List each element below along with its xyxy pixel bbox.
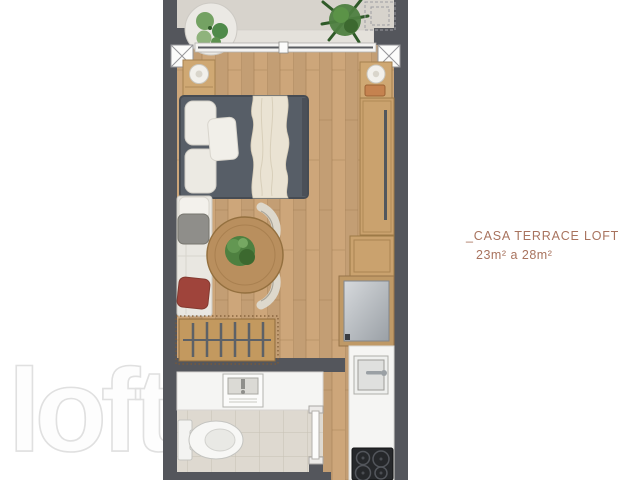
loft-watermark: loft bbox=[8, 352, 167, 470]
sliding-door bbox=[195, 42, 376, 53]
unit-label: _CASA TERRACE LOFT 23m² a 28m² bbox=[466, 229, 619, 262]
unit-title: _CASA TERRACE LOFT bbox=[466, 229, 619, 243]
cooktop bbox=[352, 448, 393, 480]
refrigerator bbox=[339, 276, 394, 346]
dining-table bbox=[207, 217, 283, 293]
slatted-bench bbox=[176, 316, 278, 364]
toilet bbox=[178, 420, 243, 460]
floorplan-canvas: { "page": { "width": 640, "height": 480,… bbox=[0, 0, 640, 480]
kitchen-cabinet bbox=[350, 236, 394, 276]
sofa-pillow-gray bbox=[178, 214, 209, 244]
table-plant bbox=[225, 236, 255, 266]
bed-blanket bbox=[251, 96, 289, 198]
wardrobe bbox=[360, 98, 394, 235]
floor-plan bbox=[163, 0, 408, 480]
bed bbox=[180, 96, 308, 198]
nightstand-right bbox=[360, 62, 392, 98]
bathroom-sink bbox=[223, 374, 263, 407]
kitchen-sink bbox=[354, 356, 388, 394]
unit-area-range: 23m² a 28m² bbox=[476, 248, 619, 262]
sofa-pillow-red bbox=[177, 277, 211, 310]
nightstand-left bbox=[183, 60, 215, 96]
